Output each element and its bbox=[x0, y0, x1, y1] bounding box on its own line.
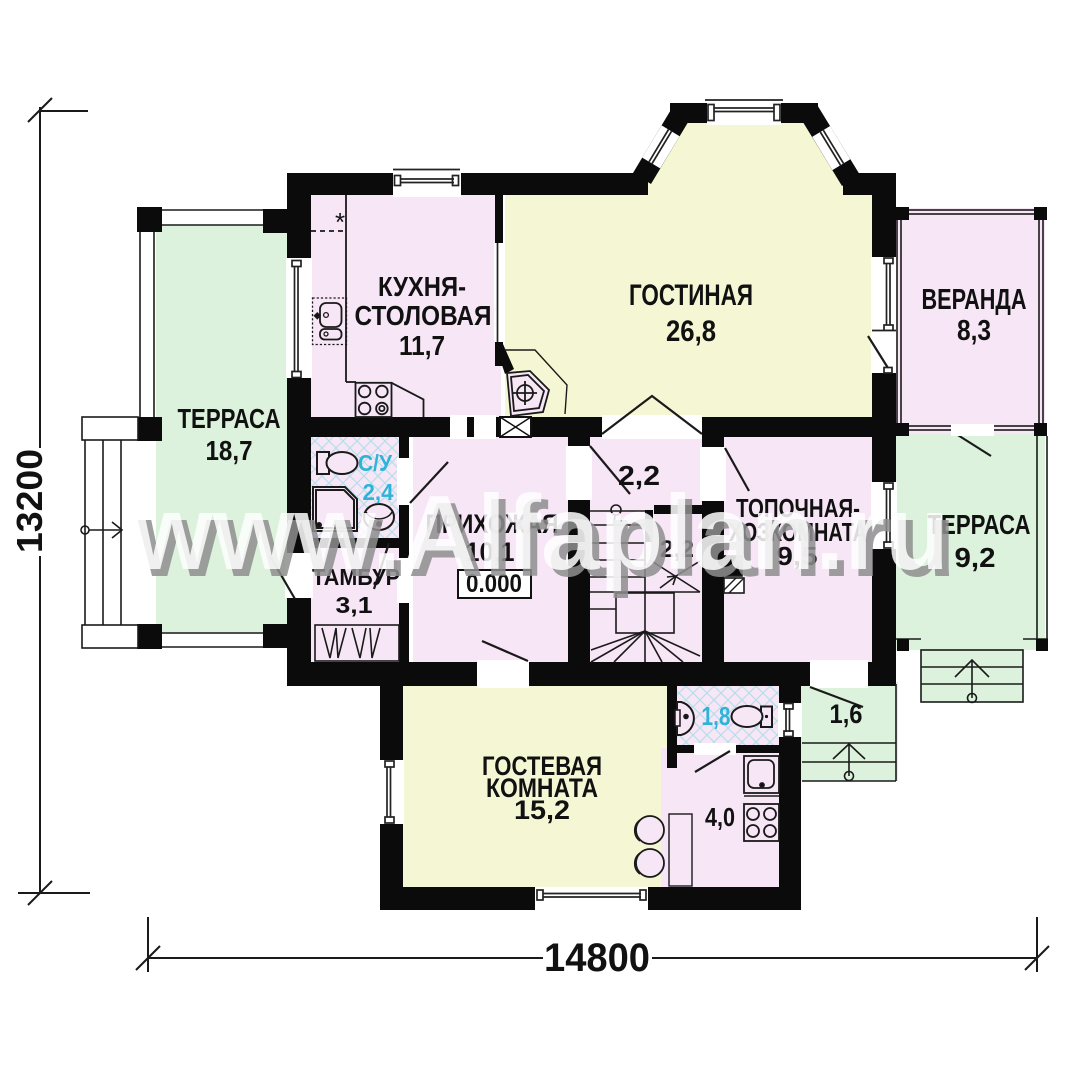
svg-text:1,8: 1,8 bbox=[702, 701, 731, 731]
svg-text:18,7: 18,7 bbox=[206, 435, 253, 466]
svg-text:СТОЛОВАЯ: СТОЛОВАЯ bbox=[355, 300, 492, 331]
svg-text:13200: 13200 bbox=[9, 449, 50, 553]
svg-text:1,6: 1,6 bbox=[830, 699, 863, 729]
svg-text:www.Alfaplan.ru: www.Alfaplan.ru bbox=[130, 474, 949, 592]
svg-text:14800: 14800 bbox=[544, 936, 650, 980]
svg-text:26,8: 26,8 bbox=[666, 315, 716, 348]
svg-text:КУХНЯ-: КУХНЯ- bbox=[378, 271, 466, 302]
svg-text:С/У: С/У bbox=[358, 450, 393, 476]
svg-text:4,0: 4,0 bbox=[705, 802, 735, 832]
svg-text:15,2: 15,2 bbox=[514, 795, 570, 825]
svg-text:ВЕРАНДА: ВЕРАНДА bbox=[922, 284, 1027, 316]
svg-text:*: * bbox=[335, 207, 345, 237]
svg-text:8,3: 8,3 bbox=[957, 315, 991, 347]
svg-text:ТЕРРАСА: ТЕРРАСА bbox=[178, 403, 281, 434]
svg-text:ГОСТИНАЯ: ГОСТИНАЯ bbox=[629, 279, 753, 312]
svg-text:9,2: 9,2 bbox=[955, 542, 996, 573]
svg-text:11,7: 11,7 bbox=[399, 330, 445, 361]
